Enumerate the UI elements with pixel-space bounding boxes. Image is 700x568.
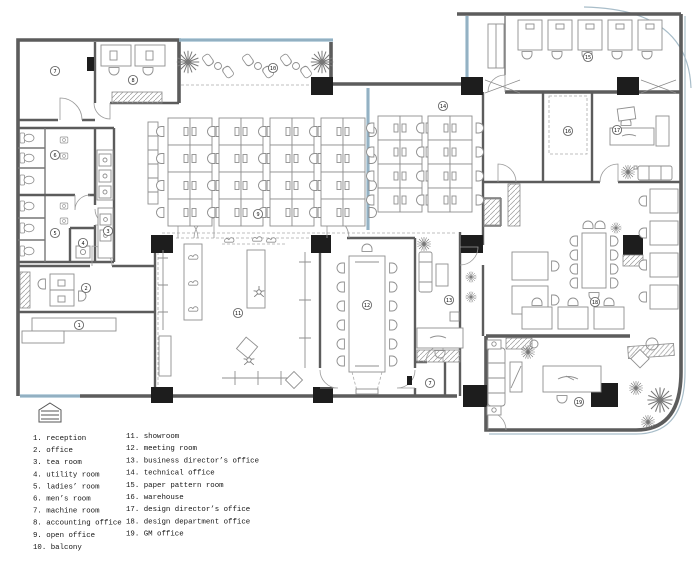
- legend-item: 8. accounting office: [33, 520, 122, 528]
- room-number-text: 12: [364, 303, 370, 309]
- monitor: [646, 24, 654, 29]
- room-number-text: 7: [428, 381, 431, 387]
- chair: [310, 154, 317, 164]
- chair: [476, 147, 483, 157]
- monitor: [294, 128, 298, 136]
- legend: 1. reception2. office3. tea room4. utili…: [33, 433, 259, 552]
- monitor: [394, 148, 398, 156]
- legend-item: 9. open office: [33, 532, 95, 540]
- legend-item: 13. business director’s office: [126, 457, 259, 465]
- legend-item: 18. design department office: [126, 518, 250, 526]
- room-number-marker: 9: [253, 209, 262, 218]
- design-director-office-furniture: [610, 107, 672, 180]
- tea-room-counters: [97, 150, 113, 258]
- legend-item: 19. GM office: [126, 531, 184, 539]
- chair: [208, 127, 215, 137]
- monitor: [184, 209, 188, 217]
- room-number-text: 2: [84, 286, 87, 292]
- meeting-room-furniture: [337, 244, 397, 394]
- monitor: [286, 182, 290, 190]
- monitor: [337, 155, 341, 163]
- chair: [417, 123, 424, 133]
- monitor: [452, 124, 456, 132]
- room-number-marker: 8: [128, 75, 137, 84]
- chair: [367, 147, 374, 157]
- monitor: [444, 172, 448, 180]
- legend-item: 2. office: [33, 447, 73, 455]
- monitor: [286, 128, 290, 136]
- reception-counter: [22, 318, 116, 343]
- monitor: [235, 128, 239, 136]
- monitor: [444, 124, 448, 132]
- room-number-marker: 7: [425, 378, 434, 387]
- monitor: [337, 209, 341, 217]
- room-number-text: 6: [53, 153, 56, 159]
- chair: [310, 127, 317, 137]
- entrance-arrow-icon: [39, 403, 61, 422]
- monitor: [394, 196, 398, 204]
- legend-item: 1. reception: [33, 435, 86, 443]
- room-number-marker: 7: [50, 66, 59, 75]
- room-number-text: 11: [235, 311, 241, 317]
- room-number-text: 14: [440, 104, 446, 110]
- machine-room-equipment: [87, 57, 94, 71]
- room-number-marker: 4: [78, 238, 87, 247]
- chair: [369, 208, 376, 218]
- accounting-office-furniture: [101, 45, 165, 103]
- monitor: [337, 128, 341, 136]
- chair: [157, 127, 164, 137]
- legend-item: 5. ladies’ room: [33, 483, 100, 491]
- room-number-text: 16: [565, 129, 571, 135]
- chair: [259, 127, 266, 137]
- room-number-text: 13: [446, 298, 452, 304]
- chair: [310, 181, 317, 191]
- monitor: [394, 172, 398, 180]
- room-number-marker: 14: [438, 101, 447, 110]
- chair: [417, 195, 424, 205]
- monitor: [192, 209, 196, 217]
- room-number-marker: 19: [574, 397, 583, 406]
- room-number-text: 19: [576, 400, 582, 406]
- room-number-marker: 18: [590, 297, 599, 306]
- room-number-marker: 15: [583, 52, 592, 61]
- chair: [417, 171, 424, 181]
- monitor: [184, 128, 188, 136]
- floor-plan-page: 123456778910111213141516171819 1. recept…: [0, 0, 700, 568]
- legend-item: 3. tea room: [33, 459, 82, 467]
- legend-item: 6. men’s room: [33, 496, 91, 504]
- chair: [642, 52, 652, 59]
- monitor: [402, 124, 406, 132]
- chair: [552, 52, 562, 59]
- monitor: [452, 196, 456, 204]
- monitor: [192, 128, 196, 136]
- chair: [208, 154, 215, 164]
- monitor: [235, 182, 239, 190]
- room-number-marker: 3: [103, 226, 112, 235]
- chair: [259, 154, 266, 164]
- monitor: [294, 209, 298, 217]
- room-number-marker: 17: [612, 125, 621, 134]
- room-number-marker: 2: [81, 283, 90, 292]
- corridor-shaft-hatch: [484, 199, 500, 225]
- gm-office-furniture: [487, 338, 674, 429]
- monitor: [345, 155, 349, 163]
- room-number-text: 17: [614, 128, 620, 134]
- monitor: [444, 148, 448, 156]
- chair: [476, 195, 483, 205]
- room-number-marker: 16: [563, 126, 572, 135]
- chair: [367, 195, 374, 205]
- room-number-text: 10: [270, 66, 276, 72]
- monitor: [294, 155, 298, 163]
- chair: [522, 52, 532, 59]
- room-number-marker: 13: [444, 295, 453, 304]
- chair: [157, 154, 164, 164]
- workstation-clusters: [157, 116, 484, 226]
- office-2-furniture: [20, 272, 86, 308]
- monitor: [402, 148, 406, 156]
- monitor: [556, 24, 564, 29]
- monitor: [184, 182, 188, 190]
- monitor: [402, 172, 406, 180]
- monitor: [243, 209, 247, 217]
- monitor: [243, 155, 247, 163]
- monitor: [444, 196, 448, 204]
- room-number-text: 3: [106, 229, 109, 235]
- legend-item: 11. showroom: [126, 433, 180, 441]
- monitor: [294, 182, 298, 190]
- legend-item: 14. technical office: [126, 470, 215, 478]
- legend-item: 17. design director’s office: [126, 506, 250, 514]
- lounge-set: [202, 53, 235, 79]
- legend-item: 12. meeting room: [126, 445, 198, 453]
- balcony-furniture: [177, 51, 333, 79]
- monitor: [616, 24, 624, 29]
- chair: [369, 181, 376, 191]
- monitor: [394, 124, 398, 132]
- legend-item: 10. balcony: [33, 544, 82, 552]
- chair: [367, 123, 374, 133]
- room-number-text: 9: [256, 212, 259, 218]
- room-number-markers: 123456778910111213141516171819: [50, 52, 621, 406]
- room-number-marker: 1: [74, 320, 83, 329]
- chair: [417, 147, 424, 157]
- monitor: [184, 155, 188, 163]
- wall-accessory: [634, 166, 637, 169]
- chair: [157, 181, 164, 191]
- room-number-marker: 5: [50, 228, 59, 237]
- room-number-text: 4: [81, 241, 84, 247]
- legend-item: 16. warehouse: [126, 494, 184, 502]
- paper-pattern-room-cabinet: [488, 24, 504, 68]
- monitor: [452, 172, 456, 180]
- monitor: [345, 128, 349, 136]
- legend-item: 4. utility room: [33, 471, 100, 479]
- legend-item: 15. paper pattern room: [126, 482, 224, 490]
- chair: [208, 208, 215, 218]
- room-number-text: 7: [53, 69, 56, 75]
- room-number-text: 18: [592, 300, 598, 306]
- monitor: [345, 182, 349, 190]
- legend-item: 7. machine room: [33, 508, 100, 516]
- monitor: [235, 209, 239, 217]
- open-office-lockers: [148, 122, 158, 204]
- room-number-marker: 10: [268, 63, 277, 72]
- monitor: [235, 155, 239, 163]
- chair: [476, 171, 483, 181]
- monitor: [243, 128, 247, 136]
- monitor: [586, 24, 594, 29]
- lounge-set: [280, 53, 313, 79]
- monitor: [243, 182, 247, 190]
- chair: [476, 123, 483, 133]
- chair: [157, 208, 164, 218]
- chair: [208, 181, 215, 191]
- room-number-marker: 6: [50, 150, 59, 159]
- monitor: [286, 155, 290, 163]
- room-number-marker: 11: [233, 308, 242, 317]
- monitor: [526, 24, 534, 29]
- monitor: [286, 209, 290, 217]
- monitor: [192, 182, 196, 190]
- chair: [310, 208, 317, 218]
- chair: [259, 181, 266, 191]
- floor-plan-svg: 123456778910111213141516171819 1. recept…: [0, 0, 700, 568]
- chair: [367, 171, 374, 181]
- monitor: [452, 148, 456, 156]
- chair: [612, 52, 622, 59]
- monitor: [337, 182, 341, 190]
- monitor: [402, 196, 406, 204]
- monitor: [345, 209, 349, 217]
- room-number-text: 1: [77, 323, 80, 329]
- warehouse-dashed-zone: [549, 96, 587, 154]
- room-number-text: 5: [53, 231, 56, 237]
- room-number-text: 15: [585, 55, 591, 61]
- room-number-text: 8: [131, 78, 134, 84]
- monitor: [192, 155, 196, 163]
- room-number-marker: 12: [362, 300, 371, 309]
